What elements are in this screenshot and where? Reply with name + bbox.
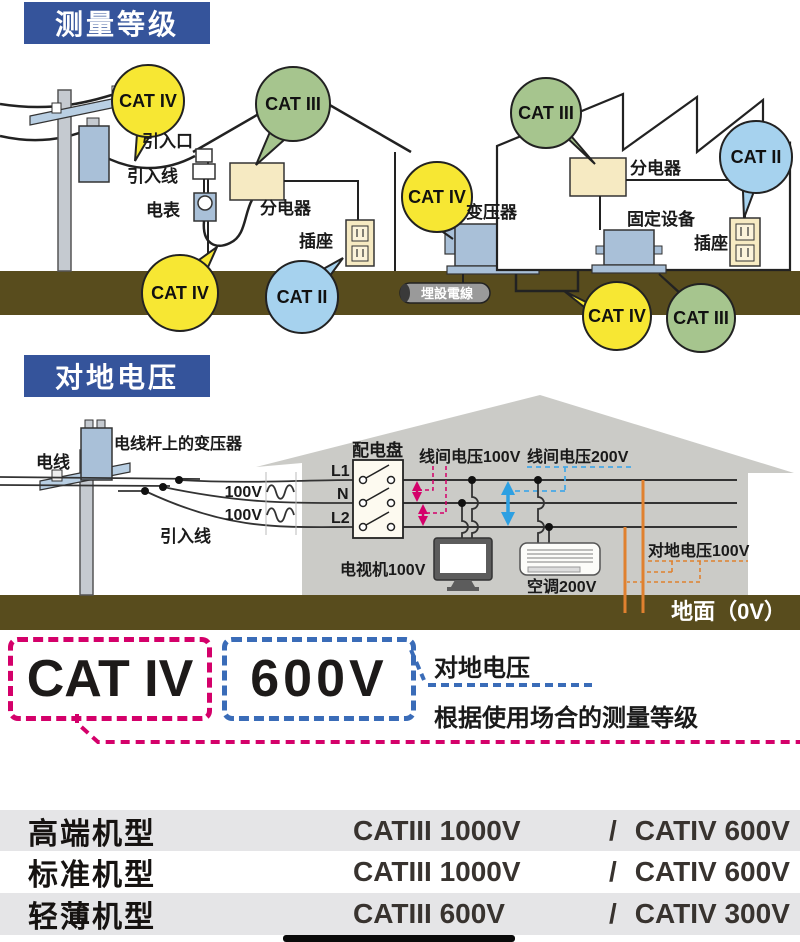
slash: / bbox=[609, 815, 617, 847]
balloon-label: CAT IV bbox=[119, 91, 177, 111]
factory-distributor-label: 分电器 bbox=[630, 158, 682, 178]
balloon-label: CAT II bbox=[277, 287, 328, 307]
ground-voltage-diagram: 电线 电线杆上的变压器 引入线 100V 100V L1 N L2 配电盘 线间… bbox=[0, 345, 800, 630]
balloon-label: CAT III bbox=[673, 308, 729, 328]
cat4-rating: CATIV 600V bbox=[635, 856, 790, 888]
distribution-panel bbox=[353, 460, 403, 538]
entry-point-label: 引入口 bbox=[142, 132, 193, 151]
fixed-equipment-label: 固定设备 bbox=[627, 209, 696, 229]
pole-transformer bbox=[79, 126, 109, 182]
balloon-label: CAT III bbox=[265, 94, 321, 114]
model-name: 高端机型 bbox=[28, 809, 353, 853]
slash: / bbox=[609, 856, 617, 888]
slash: / bbox=[609, 898, 617, 930]
aircon-label: 空调200V bbox=[527, 577, 597, 596]
cat4-rating: CATIV 300V bbox=[635, 898, 790, 930]
electric-meter bbox=[194, 193, 216, 221]
measurement-category-diagram: CAT IV CAT III CAT IV CAT II CAT IV CAT … bbox=[0, 0, 800, 358]
buried-cable-label: 埋設電線 bbox=[421, 286, 474, 301]
meter-label: 电表 bbox=[146, 200, 181, 220]
cat-balloon-house-outlet: CAT II bbox=[266, 258, 343, 333]
feeder-wires bbox=[0, 477, 353, 527]
factory-outlet-label: 插座 bbox=[694, 233, 728, 253]
service-wire-label: 引入线 bbox=[127, 166, 178, 186]
pole-transformer bbox=[81, 428, 112, 480]
house-outlet-label: 插座 bbox=[299, 231, 333, 251]
l2-label: L2 bbox=[331, 510, 350, 527]
pole-transformer-label: 电线杆上的变压器 bbox=[114, 434, 243, 453]
panel-label: 配电盘 bbox=[352, 440, 403, 460]
ground-label: 地面（0V） bbox=[671, 599, 786, 624]
n-label: N bbox=[337, 486, 349, 503]
table-row: 轻薄机型 CATIII 600V / CATIV 300V bbox=[0, 893, 800, 935]
balloon-label: CAT IV bbox=[408, 187, 466, 207]
tv-label: 电视机100V bbox=[340, 560, 426, 579]
balloon-label: CAT IV bbox=[588, 306, 646, 326]
table-row: 高端机型 CATIII 1000V / CATIV 600V bbox=[0, 810, 800, 851]
cat3-rating: CATIII 1000V bbox=[353, 815, 609, 847]
callout-connectors bbox=[0, 630, 800, 800]
house-distribution-box bbox=[230, 163, 284, 200]
balloon-label: CAT IV bbox=[151, 283, 209, 303]
model-name: 轻薄机型 bbox=[28, 892, 353, 936]
line-voltage-200-label: 线间电压200V bbox=[527, 447, 629, 466]
cat-balloon-meter: CAT IV bbox=[142, 247, 218, 331]
house-wall-outlet bbox=[346, 220, 374, 266]
line-voltage-100-label: 线间电压100V bbox=[419, 447, 521, 466]
ground-voltage-label: 对地电压100V bbox=[648, 541, 750, 560]
table-row: 标准机型 CATIII 1000V / CATIV 600V bbox=[0, 851, 800, 893]
service-wire-label: 引入线 bbox=[160, 526, 211, 546]
cat3-rating: CATIII 1000V bbox=[353, 856, 609, 888]
cat4-rating: CATIV 600V bbox=[635, 815, 790, 847]
transformer-label: 变压器 bbox=[466, 202, 518, 222]
voltage-top-label: 100V bbox=[225, 484, 263, 501]
utility-pole bbox=[30, 86, 126, 271]
factory-distribution-box bbox=[570, 158, 626, 196]
voltage-bottom-label: 100V bbox=[225, 507, 263, 524]
balloon-label: CAT II bbox=[731, 147, 782, 167]
model-name: 标准机型 bbox=[28, 850, 353, 894]
bottom-divider-bar bbox=[283, 935, 515, 942]
cat3-rating: CATIII 600V bbox=[353, 898, 609, 930]
blue-connector bbox=[411, 650, 595, 685]
balloon-label: CAT III bbox=[518, 103, 574, 123]
house-distributor-label: 分电器 bbox=[260, 198, 312, 218]
magenta-connector bbox=[77, 714, 800, 742]
wire-label: 电线 bbox=[36, 452, 70, 472]
factory-wall-outlet bbox=[730, 218, 760, 266]
l1-label: L1 bbox=[331, 463, 350, 480]
